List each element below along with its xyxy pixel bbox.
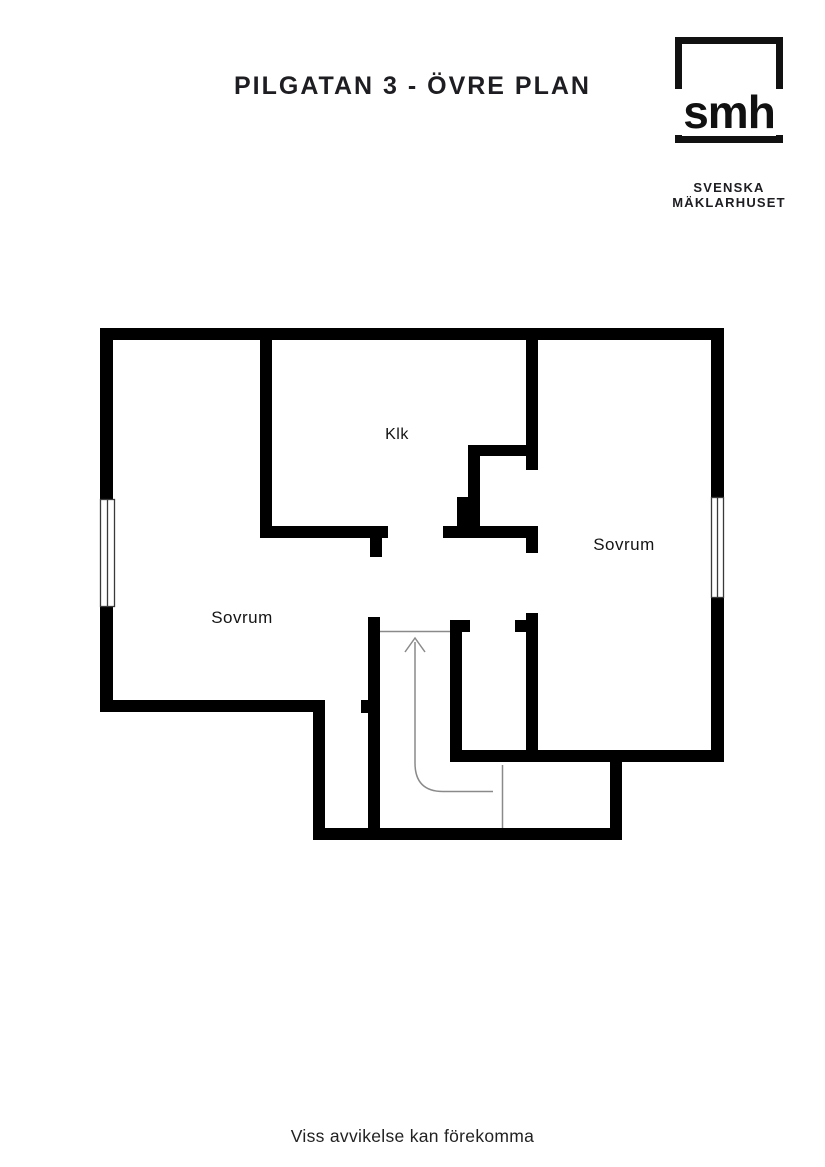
wall-segment [462, 620, 470, 632]
wall-segment [443, 526, 538, 538]
wall-segment [610, 762, 622, 840]
floorplan-drawing [0, 0, 825, 1167]
wall-segment [370, 538, 382, 557]
window-right [712, 498, 724, 598]
wall-segment [313, 700, 325, 840]
wall-segment [361, 700, 368, 713]
room-label-sovrum-right: Sovrum [593, 535, 655, 555]
wall-segment [526, 538, 538, 553]
wall-segment [100, 607, 113, 712]
wall-segment [711, 598, 724, 762]
wall-segment [260, 526, 388, 538]
wall-segment [515, 620, 526, 632]
floorplan-page: PILGATAN 3 - ÖVRE PLAN smh SVENSKA MÄKLA… [0, 0, 825, 1167]
wall-segment [450, 620, 462, 762]
wall-segment [711, 328, 724, 497]
wall-segment [100, 700, 325, 712]
wall-segment [100, 328, 113, 499]
window-left [101, 500, 115, 607]
disclaimer-text: Viss avvikelse kan förekomma [0, 1126, 825, 1147]
wall-segment [457, 497, 480, 530]
wall-segment [526, 613, 538, 762]
wall-segment [313, 828, 622, 840]
room-label-klk: Klk [385, 426, 409, 444]
wall-segment [368, 617, 380, 840]
walls [100, 328, 724, 840]
wall-segment [100, 328, 724, 340]
wall-segment [260, 340, 272, 537]
room-label-sovrum-left: Sovrum [211, 608, 273, 628]
wall-segment [450, 750, 724, 762]
